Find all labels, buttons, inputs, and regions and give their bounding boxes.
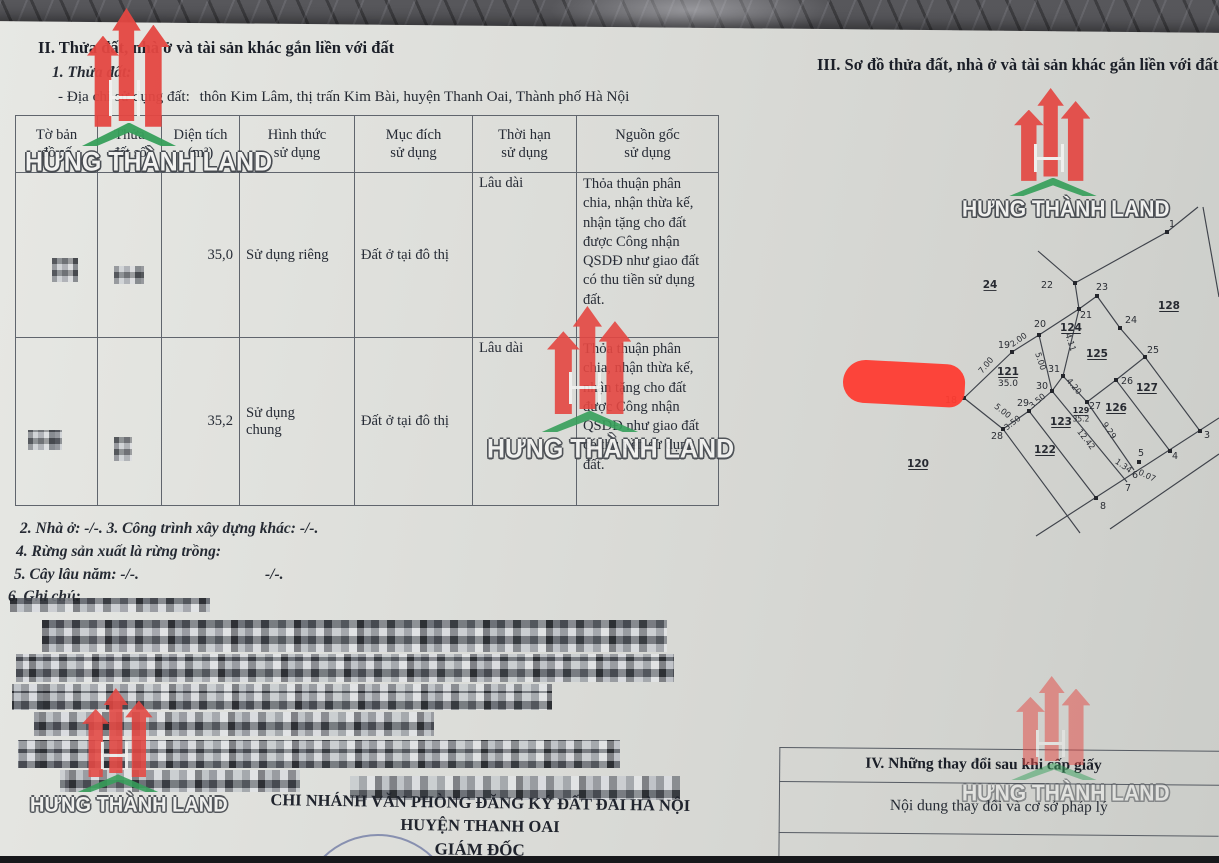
photo-bottom-edge <box>0 856 1219 863</box>
document-photo: II. Thửa đất, nhà ở và tài sản khác gắn … <box>0 0 1219 863</box>
section4-block: IV. Những thay đổi sau khi cấp giấy Nội … <box>0 0 1219 863</box>
section4-title: IV. Những thay đổi sau khi cấp giấy <box>865 755 1102 775</box>
section4-row-header: Nội dung thay đổi và cơ sở pháp lý <box>789 796 1209 818</box>
red-highlight-marker <box>842 359 966 408</box>
